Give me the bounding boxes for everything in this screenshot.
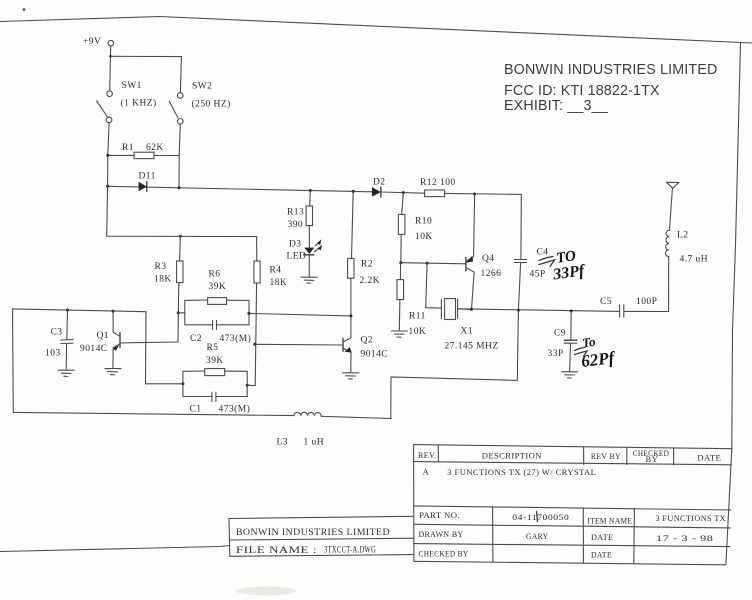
svg-text:3TXCCT-A.DWG: 3TXCCT-A.DWG bbox=[324, 546, 376, 556]
svg-text:18K: 18K bbox=[154, 275, 172, 285]
svg-text:62K: 62K bbox=[146, 143, 164, 153]
svg-text:A: A bbox=[423, 467, 430, 477]
svg-text:DESCRIPTION: DESCRIPTION bbox=[482, 451, 542, 461]
svg-text:Q2: Q2 bbox=[361, 336, 374, 346]
svg-text:PART NO.: PART NO. bbox=[419, 510, 460, 520]
svg-text:390: 390 bbox=[288, 220, 304, 230]
svg-text:62Pf: 62Pf bbox=[580, 348, 617, 371]
svg-text:33P: 33P bbox=[548, 349, 564, 359]
svg-text:9014C: 9014C bbox=[80, 344, 108, 354]
svg-text:X1: X1 bbox=[461, 327, 474, 337]
svg-text:D2: D2 bbox=[373, 178, 386, 188]
svg-text:D3: D3 bbox=[289, 240, 302, 250]
svg-text:2.2K: 2.2K bbox=[360, 276, 381, 286]
svg-text:R13: R13 bbox=[287, 208, 304, 218]
svg-text:Q1: Q1 bbox=[97, 331, 110, 341]
svg-text:473(M): 473(M) bbox=[220, 333, 252, 344]
svg-text:GARY: GARY bbox=[526, 531, 549, 541]
svg-text:REV BY: REV BY bbox=[591, 451, 621, 461]
svg-text:39K: 39K bbox=[209, 282, 227, 292]
svg-text:C4: C4 bbox=[537, 248, 549, 258]
svg-text:SW2: SW2 bbox=[192, 82, 212, 92]
svg-text:SW1: SW1 bbox=[122, 81, 142, 91]
svg-text:R11: R11 bbox=[409, 312, 426, 322]
svg-text:BONWIN INDUSTRIES LIMITED: BONWIN INDUSTRIES LIMITED bbox=[504, 62, 717, 78]
svg-text:(250 HZ): (250 HZ) bbox=[192, 99, 231, 110]
svg-text:473(M): 473(M) bbox=[219, 404, 251, 415]
svg-text:33Pf: 33Pf bbox=[551, 262, 587, 284]
svg-text:10K: 10K bbox=[415, 232, 433, 242]
svg-text:DATE: DATE bbox=[591, 532, 614, 542]
svg-text:C3: C3 bbox=[51, 328, 63, 338]
svg-text:1266: 1266 bbox=[481, 269, 502, 279]
svg-text:R5: R5 bbox=[207, 343, 219, 353]
svg-text:L2: L2 bbox=[677, 231, 688, 241]
svg-text:R12 100: R12 100 bbox=[420, 178, 456, 188]
svg-text:R3: R3 bbox=[155, 262, 167, 272]
svg-text:C9: C9 bbox=[554, 329, 566, 339]
svg-text:DRAWN BY: DRAWN BY bbox=[419, 529, 464, 539]
svg-text:1 uH: 1 uH bbox=[304, 438, 325, 448]
svg-text:FCC ID: KTI 18822-1TX: FCC ID: KTI 18822-1TX bbox=[504, 83, 660, 99]
svg-text:ITEM NAME: ITEM NAME bbox=[587, 516, 632, 526]
svg-text:10K: 10K bbox=[409, 327, 427, 337]
svg-text:CHECKED BY: CHECKED BY bbox=[419, 549, 469, 559]
svg-text:LED: LED bbox=[287, 252, 307, 262]
svg-text:R10: R10 bbox=[415, 217, 432, 227]
svg-text:04-11700050: 04-11700050 bbox=[512, 512, 569, 522]
svg-text:BONWIN INDUSTRIES LIMITED: BONWIN INDUSTRIES LIMITED bbox=[236, 528, 390, 538]
svg-text:R2: R2 bbox=[361, 260, 373, 270]
svg-text:18K: 18K bbox=[270, 278, 288, 288]
svg-text:3 FUNCTIONS TX: 3 FUNCTIONS TX bbox=[656, 513, 727, 523]
svg-text:R4: R4 bbox=[270, 266, 282, 276]
svg-text:R6: R6 bbox=[209, 270, 221, 280]
svg-text:3 FUNCTIONS TX (27) W/ CRYSTAL: 3 FUNCTIONS TX (27) W/ CRYSTAL bbox=[447, 467, 596, 477]
svg-text:BY: BY bbox=[646, 454, 659, 464]
svg-text:EXHIBIT: __3__: EXHIBIT: __3__ bbox=[504, 98, 609, 114]
svg-text:+9V: +9V bbox=[83, 37, 101, 47]
svg-text:39K: 39K bbox=[206, 356, 224, 366]
svg-text:L3: L3 bbox=[277, 438, 288, 448]
svg-text:17 - 3 - 98: 17 - 3 - 98 bbox=[656, 533, 714, 543]
svg-text:27.145 MHZ: 27.145 MHZ bbox=[445, 342, 499, 352]
svg-text:C2: C2 bbox=[190, 334, 202, 344]
svg-text:9014C: 9014C bbox=[361, 350, 389, 360]
svg-text:R1: R1 bbox=[122, 143, 134, 153]
svg-text:(1 KHZ): (1 KHZ) bbox=[121, 98, 157, 109]
svg-text:C5: C5 bbox=[600, 297, 612, 307]
svg-text:D11: D11 bbox=[139, 172, 156, 182]
svg-text:45P: 45P bbox=[530, 270, 546, 280]
svg-text:C1: C1 bbox=[190, 405, 202, 415]
svg-text:FILE NAME :: FILE NAME : bbox=[236, 546, 317, 556]
svg-text:4.7 uH: 4.7 uH bbox=[680, 255, 709, 265]
svg-text:Q4: Q4 bbox=[482, 254, 495, 264]
svg-text:103: 103 bbox=[45, 349, 61, 359]
svg-text:DATE: DATE bbox=[697, 453, 721, 463]
svg-text:100P: 100P bbox=[636, 297, 657, 307]
svg-text:DATE: DATE bbox=[591, 550, 612, 560]
svg-text:REV.: REV. bbox=[418, 450, 437, 460]
